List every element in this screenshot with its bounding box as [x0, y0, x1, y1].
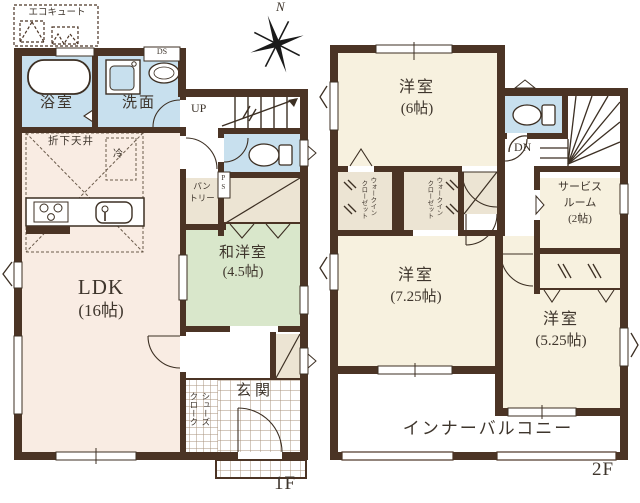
wic1-label-col2: クローゼット: [359, 180, 366, 219]
service-room-label-line1: サービス: [539, 182, 621, 194]
ldk-size-label: (16帖): [39, 302, 163, 320]
sink-icon: [96, 202, 132, 223]
shoes-closet-label-col1: シューズ: [201, 392, 210, 426]
bathtub-icon: [28, 60, 90, 94]
toilet-icon-1f: [249, 144, 292, 166]
genkan-label: 玄関: [215, 384, 295, 400]
duct-space-label: DS: [146, 48, 178, 56]
wic1-label-col1: ウォークイン: [368, 177, 375, 216]
casement-mark: [308, 146, 316, 160]
washing-machine-icon: [106, 60, 140, 94]
wic2-label-col2: クローゼット: [425, 180, 432, 219]
wic2-label-col1: ウォークイン: [434, 177, 441, 216]
inner-balcony-label: インナーバルコニー: [358, 420, 618, 438]
casement-mark: [3, 262, 12, 286]
washitsu-label: 和洋室: [187, 246, 299, 262]
pantry-label-line1: パン: [186, 182, 218, 191]
eco-cute-label: エコキュート: [18, 9, 96, 19]
washroom-label: 洗面: [103, 96, 175, 112]
stairs-up-label: UP: [191, 102, 206, 115]
fridge-label: 冷: [113, 150, 123, 161]
casement-mark: [308, 354, 316, 368]
bedroom525-size-label: (5.25帖): [501, 334, 621, 350]
floor1-plan: [3, 5, 316, 478]
casement-mark: [631, 333, 638, 357]
bedroom525-label: 洋室: [501, 312, 621, 329]
pipe-space-label: PS: [219, 174, 226, 192]
bath-label: 浴室: [27, 96, 87, 112]
service-room-label-line3: (2帖): [539, 214, 621, 226]
bedroom6-label: 洋室: [357, 80, 477, 97]
service-room-label-line2: ルーム: [539, 198, 621, 210]
lowered-ceiling-label: 折下天井: [48, 136, 94, 147]
casement-mark: [320, 257, 327, 279]
floor2-label: 2F: [592, 460, 614, 480]
washitsu-size-label: (4.5帖): [187, 266, 299, 281]
casement-mark: [320, 86, 327, 108]
stairs-down-label: DN: [514, 141, 531, 154]
bedroom725-label: 洋室: [356, 268, 476, 285]
toilet-icon-2f: [513, 105, 555, 125]
bedroom725-size-label: (7.25帖): [356, 290, 476, 306]
bedroom6-size-label: (6帖): [357, 102, 477, 118]
shoes-closet-label-col2: クローク: [189, 392, 198, 426]
washbasin-icon: [149, 63, 179, 83]
compass-north-label: N: [276, 0, 285, 14]
floorplan-page: N エコキュート 浴室 洗面 DS UP PS パン トリー 折下天井 冷 LD…: [0, 0, 640, 503]
pantry-label-line2: トリー: [184, 194, 220, 203]
ldk-label: LDK: [39, 276, 163, 298]
floor1-label: 1F: [274, 474, 296, 494]
compass-icon: [241, 7, 313, 81]
